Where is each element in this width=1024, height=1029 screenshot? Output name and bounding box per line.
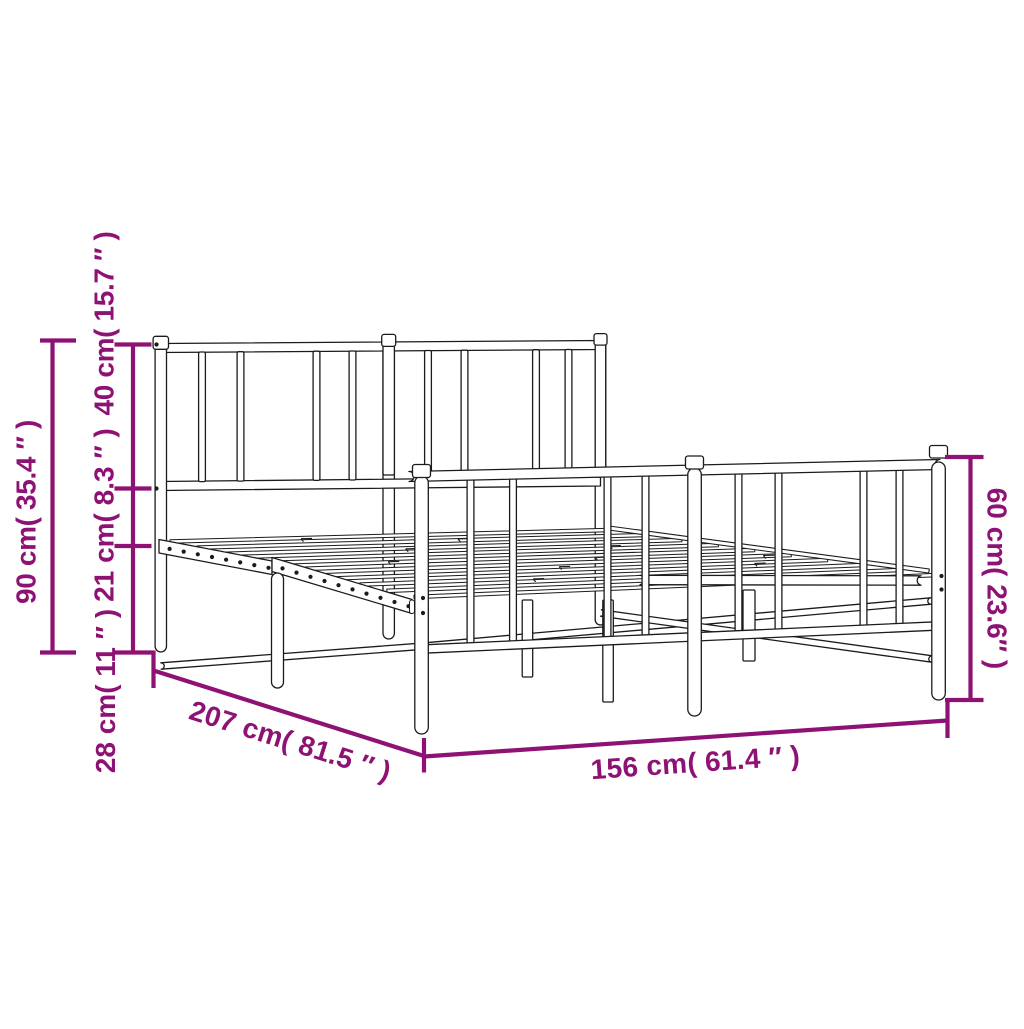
svg-text:60 cm( 23.6″ ): 60 cm( 23.6″ ) xyxy=(982,488,1013,670)
svg-text:90 cm( 35.4 ″ ): 90 cm( 35.4 ″ ) xyxy=(11,420,42,604)
svg-text:21 cm( 8.3 ″ ): 21 cm( 8.3 ″ ) xyxy=(89,428,120,602)
svg-text:40 cm( 15.7 ″ ): 40 cm( 15.7 ″ ) xyxy=(89,231,120,415)
svg-text:28 cm( 11 ″ ): 28 cm( 11 ″ ) xyxy=(90,609,121,773)
